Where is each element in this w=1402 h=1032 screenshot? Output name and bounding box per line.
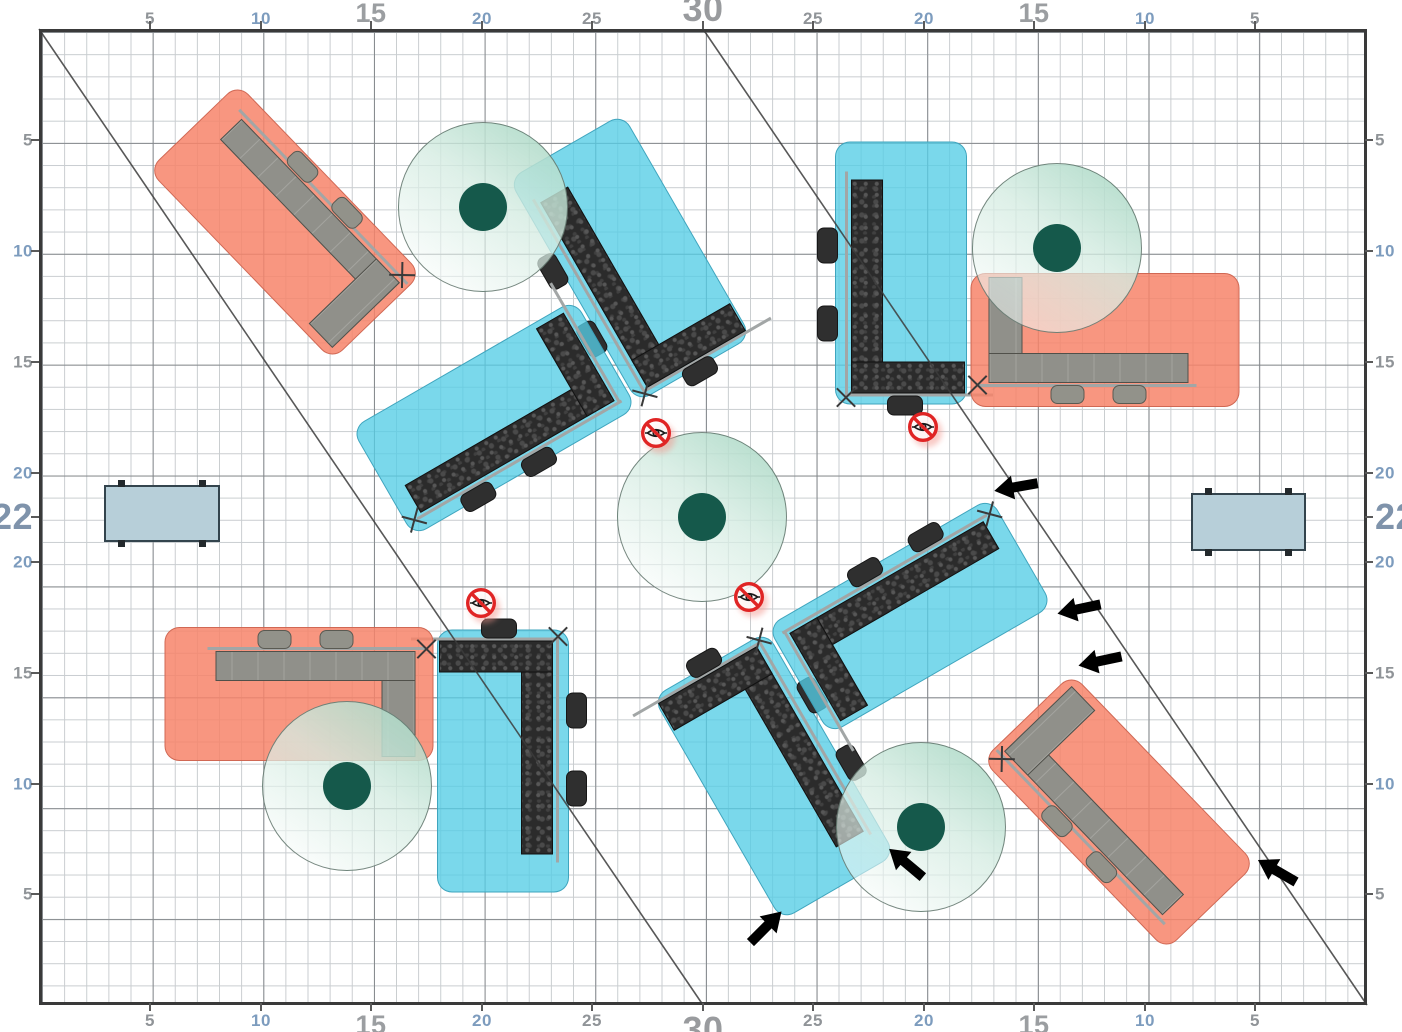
ruler-label: 5 — [145, 1012, 155, 1029]
chair[interactable] — [1113, 385, 1147, 404]
desk-screen — [845, 172, 848, 396]
chair[interactable] — [1051, 385, 1085, 404]
ruler-tick — [1144, 21, 1146, 29]
ruler-label: 25 — [803, 10, 823, 27]
ruler-label: 20 — [472, 1012, 492, 1029]
ruler-tick — [370, 21, 372, 29]
table-foot — [118, 480, 125, 487]
ruler-label: 10 — [1375, 776, 1395, 793]
table-foot — [199, 480, 206, 487]
ruler-label: 20 — [1375, 465, 1395, 482]
table-foot — [199, 540, 206, 547]
ruler-label: 10 — [1135, 1012, 1155, 1029]
l-desk-bar[interactable] — [989, 353, 1189, 383]
ruler-label: 20 — [472, 10, 492, 27]
chair[interactable] — [817, 228, 838, 264]
ruler-label: 5 — [1250, 1012, 1260, 1029]
l-desk-arm[interactable] — [851, 362, 965, 394]
plant-center-dot — [678, 493, 726, 541]
ruler-label: 25 — [582, 10, 602, 27]
no-visibility-icon[interactable] — [464, 586, 498, 620]
ruler-label: 20 — [13, 465, 33, 482]
l-desk-bar[interactable] — [216, 651, 416, 681]
no-visibility-icon[interactable] — [639, 416, 673, 450]
ruler-tick — [31, 361, 39, 363]
ruler-tick — [31, 250, 39, 252]
ruler-label: 22 — [1375, 499, 1402, 535]
plant-center-dot — [1033, 224, 1081, 272]
side-table-right[interactable] — [1191, 493, 1306, 551]
side-table-left[interactable] — [104, 485, 220, 542]
ruler-tick — [31, 139, 39, 141]
ruler-label: 5 — [23, 886, 33, 903]
ruler-label: 5 — [1250, 10, 1260, 27]
ruler-label: 15 — [355, 0, 386, 27]
table-foot — [1285, 488, 1292, 495]
no-visibility-icon[interactable] — [906, 410, 940, 444]
table-foot — [118, 540, 125, 547]
ruler-tick — [591, 21, 593, 29]
ruler-label: 20 — [914, 1012, 934, 1029]
desk-screen — [979, 384, 1197, 387]
ruler-label: 15 — [1018, 1012, 1049, 1032]
table-foot — [1205, 549, 1212, 556]
ruler-label: 22 — [0, 499, 33, 535]
chair[interactable] — [817, 306, 838, 342]
ruler-tick — [702, 21, 704, 29]
corner-cross-marker — [989, 746, 1015, 772]
chair[interactable] — [320, 630, 354, 649]
ruler-tick — [149, 21, 151, 29]
plant-circle[interactable] — [836, 742, 1006, 912]
ruler-label: 5 — [1375, 886, 1385, 903]
plant-center-dot — [323, 762, 371, 810]
ruler-label: 15 — [13, 665, 33, 682]
ruler-label: 15 — [13, 354, 33, 371]
desk-screen — [208, 647, 426, 650]
plant-circle[interactable] — [398, 122, 568, 292]
l-desk-bar[interactable] — [521, 641, 553, 855]
ruler-label: 20 — [13, 554, 33, 571]
ruler-label: 25 — [582, 1012, 602, 1029]
ruler-label: 10 — [251, 1012, 271, 1029]
table-foot — [1205, 488, 1212, 495]
ruler-label: 15 — [1018, 0, 1049, 27]
workstation-pod-bottom-left-vertical[interactable] — [437, 630, 569, 893]
ruler-label: 20 — [1375, 554, 1395, 571]
plant-center-dot — [459, 183, 507, 231]
chair[interactable] — [258, 630, 292, 649]
ruler-tick — [923, 21, 925, 29]
ruler-label: 20 — [914, 10, 934, 27]
ruler-label: 10 — [1375, 243, 1395, 260]
ruler-tick — [31, 561, 39, 563]
l-desk-arm[interactable] — [439, 641, 553, 673]
ruler-label: 15 — [1375, 354, 1395, 371]
ruler-label: 10 — [251, 10, 271, 27]
ruler-tick — [31, 472, 39, 474]
workstation-pod-top-right-vertical[interactable] — [835, 142, 967, 405]
ruler-tick — [1033, 21, 1035, 29]
desk-screen — [556, 639, 559, 863]
ruler-tick — [260, 21, 262, 29]
chair[interactable] — [566, 693, 587, 729]
ruler-tick — [31, 783, 39, 785]
plant-circle[interactable] — [262, 701, 432, 871]
ruler-tick — [481, 21, 483, 29]
ruler-label: 10 — [13, 243, 33, 260]
plant-circle[interactable] — [972, 163, 1142, 333]
ruler-label: 5 — [145, 10, 155, 27]
ruler-label: 30 — [682, 0, 723, 27]
no-visibility-icon[interactable] — [732, 580, 766, 614]
ruler-tick — [1254, 21, 1256, 29]
ruler-label: 10 — [1135, 10, 1155, 27]
table-foot — [1285, 549, 1292, 556]
plant-circle[interactable] — [617, 432, 787, 602]
ruler-tick — [31, 672, 39, 674]
ruler-label: 5 — [1375, 132, 1385, 149]
ruler-label: 5 — [23, 132, 33, 149]
corner-cross-marker — [389, 262, 415, 288]
ruler-label: 25 — [803, 1012, 823, 1029]
ruler-label: 15 — [1375, 665, 1395, 682]
ruler-label: 15 — [355, 1012, 386, 1032]
ruler-tick — [812, 21, 814, 29]
chair[interactable] — [566, 771, 587, 807]
floor-plan-canvas: 5101520253025201510551015202530252015105… — [0, 0, 1402, 1032]
ruler-label: 10 — [13, 776, 33, 793]
ruler-tick — [31, 516, 39, 518]
chair[interactable] — [481, 619, 517, 639]
ruler-tick — [31, 893, 39, 895]
ruler-label: 30 — [682, 1012, 723, 1032]
